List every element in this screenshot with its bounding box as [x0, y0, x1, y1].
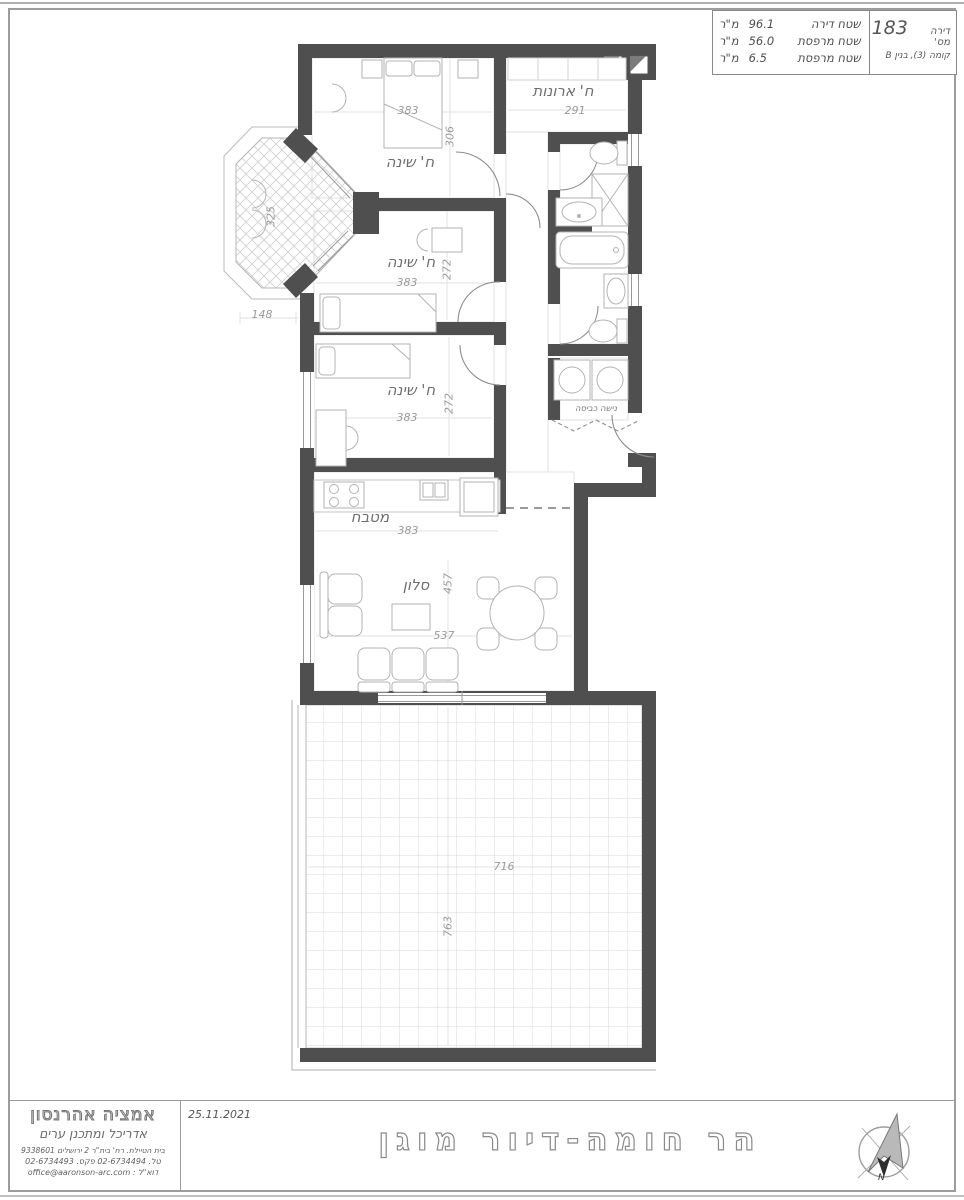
- dim-terrace-width: 716: [482, 860, 526, 873]
- sink-fixture-2: [604, 274, 628, 308]
- area-value: 96.1: [749, 16, 783, 33]
- area-unit: מ"ר: [719, 16, 739, 33]
- area-unit: מ"ר: [719, 50, 739, 67]
- footer-divider: [180, 1100, 181, 1190]
- area-label: שטח מרפסת: [783, 50, 861, 67]
- area-row: שטח דירה 96.1 מ"ר: [719, 16, 861, 33]
- room-label-bedroom1: ח' שינה: [370, 153, 450, 171]
- dim-terrace-height: 763: [442, 905, 455, 949]
- toilet-fixture-2: [589, 319, 627, 343]
- dim-living-width: 537: [422, 629, 466, 642]
- floor-plan-drawing: N: [0, 0, 964, 1200]
- room-label-laundry: נישה כביסה: [556, 404, 636, 414]
- sheet-outer-bottom-line: [0, 1195, 964, 1197]
- dim-balcony: 325: [265, 195, 278, 239]
- architect-name: אמציה אהרנסון: [10, 1104, 176, 1126]
- north-letter: N: [878, 1173, 885, 1183]
- octagon-balcony: [224, 127, 357, 299]
- dim-bedroom1-width: 383: [386, 104, 430, 117]
- architect-email: דוא"ל : office@aaronson-arc.com: [10, 1167, 176, 1178]
- area-label: שטח מרפסת: [783, 33, 861, 50]
- room-label-bedroom2: ח' שינה: [371, 253, 451, 271]
- plan-date: 25.11.2021: [188, 1108, 251, 1121]
- terrace: [292, 700, 656, 1070]
- dim-bedroom2-height: 272: [441, 248, 454, 292]
- dim-bedroom3-width: 383: [385, 411, 429, 424]
- bed-single-3: [316, 344, 410, 466]
- dim-closet-width: 291: [553, 104, 597, 117]
- sheet-outer-top-line: [0, 2, 964, 4]
- area-row: שטח מרפסת 6.5 מ"ר: [719, 50, 861, 67]
- dining-table: [477, 577, 557, 650]
- dim-bedroom1-height: 306: [444, 115, 457, 159]
- dim-kitchen-width: 383: [386, 524, 430, 537]
- architect-address: בית הטיילת. רח' בית"ר 2 ירושלים 9338601: [10, 1145, 176, 1156]
- area-label: שטח דירה: [783, 16, 861, 33]
- area-value: 56.0: [749, 33, 783, 50]
- title-block: דירה מס' 183 קומה (3), בנין B שטח דירה 9…: [712, 10, 957, 75]
- dim-bedroom3-height: 272: [443, 382, 456, 426]
- floor-plan-sheet: N ח' שינה 383 306 ח' ארונות 291 325 148 …: [0, 0, 964, 1200]
- washing-machines: [554, 360, 628, 400]
- project-title: הר חומה-דיור מוגן: [300, 1122, 840, 1158]
- floor-building-text: קומה (3), בנין B: [872, 51, 950, 61]
- dim-bedroom2-width: 383: [385, 276, 429, 289]
- dim-living-height: 457: [442, 562, 455, 606]
- architect-phones: טל. 02-6734494 פקס. 02-6734493: [10, 1156, 176, 1167]
- toilet-fixture-1: [590, 141, 627, 165]
- architect-title: אדריכל ומתכנן ערים: [10, 1126, 176, 1142]
- footer-top-line: [8, 1100, 954, 1101]
- apartment-number-label: דירה מס': [913, 26, 950, 48]
- bathtub-fixture: [556, 232, 628, 268]
- area-unit: מ"ר: [719, 33, 739, 50]
- area-row: שטח מרפסת 56.0 מ"ר: [719, 33, 861, 50]
- room-label-bedroom3: ח' שינה: [371, 381, 451, 399]
- architect-stamp: אמציה אהרנסון אדריכל ומתכנן ערים בית הטי…: [10, 1104, 176, 1188]
- room-label-closet: ח' ארונות: [513, 82, 613, 100]
- area-value: 6.5: [749, 50, 783, 67]
- north-arrow-icon: N: [858, 1114, 910, 1183]
- sink-fixture-1: [556, 198, 602, 226]
- wardrobes: [508, 58, 626, 80]
- apartment-info: דירה מס' 183 קומה (3), בנין B: [869, 11, 956, 74]
- area-table: שטח דירה 96.1 מ"ר שטח מרפסת 56.0 מ"ר שטח…: [713, 11, 869, 74]
- apartment-number-value: 183: [872, 17, 908, 39]
- dim-offset: 148: [240, 308, 284, 321]
